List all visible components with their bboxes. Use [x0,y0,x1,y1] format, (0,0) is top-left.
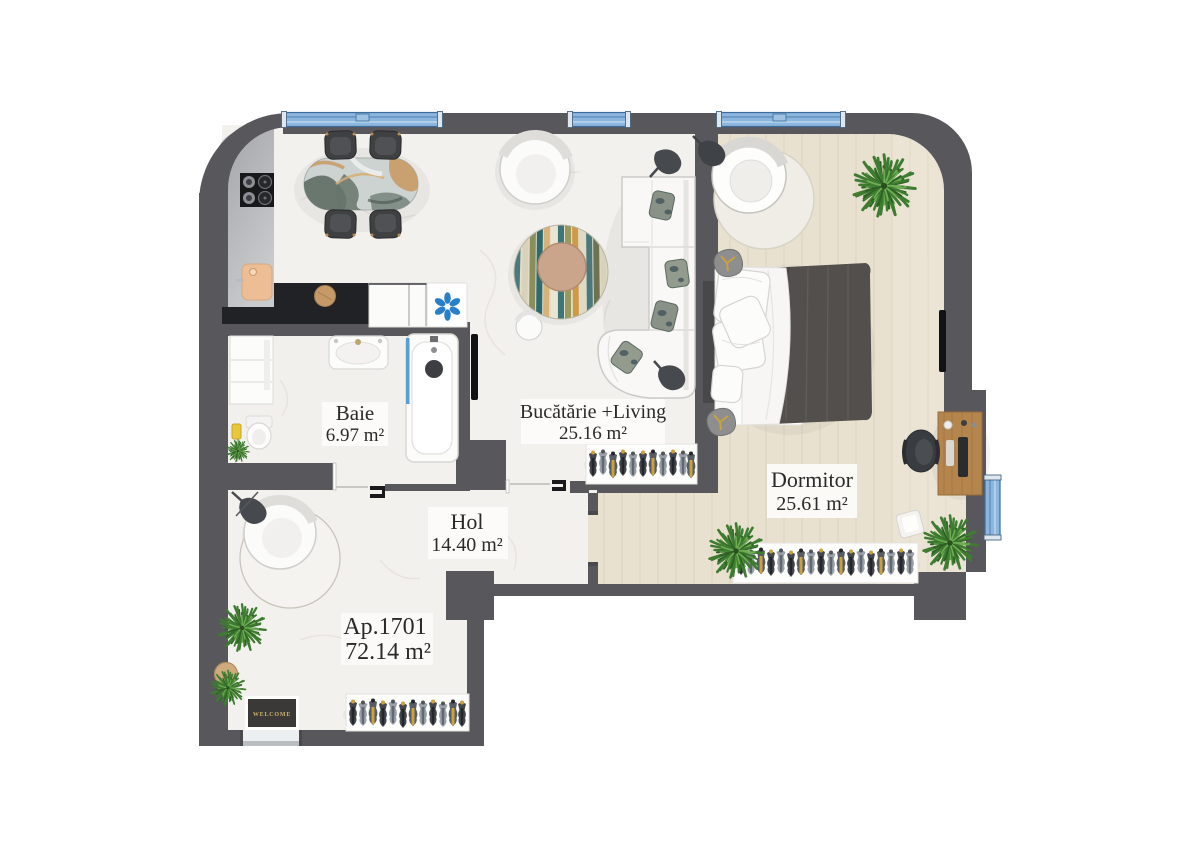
svg-text:25.61 m²: 25.61 m² [776,493,848,515]
svg-text:25.16 m²: 25.16 m² [559,423,627,444]
svg-text:Baie: Baie [336,401,374,425]
svg-text:Hol: Hol [451,509,484,534]
svg-text:Dormitor: Dormitor [771,467,854,492]
svg-text:WELCOME: WELCOME [253,712,291,718]
svg-text:6.97 m²: 6.97 m² [326,425,385,446]
svg-text:Bucătărie +Living: Bucătărie +Living [520,401,666,423]
svg-text:14.40 m²: 14.40 m² [431,534,503,556]
svg-text:Ap.1701: Ap.1701 [343,614,426,640]
svg-text:72.14 m²: 72.14 m² [345,639,431,665]
